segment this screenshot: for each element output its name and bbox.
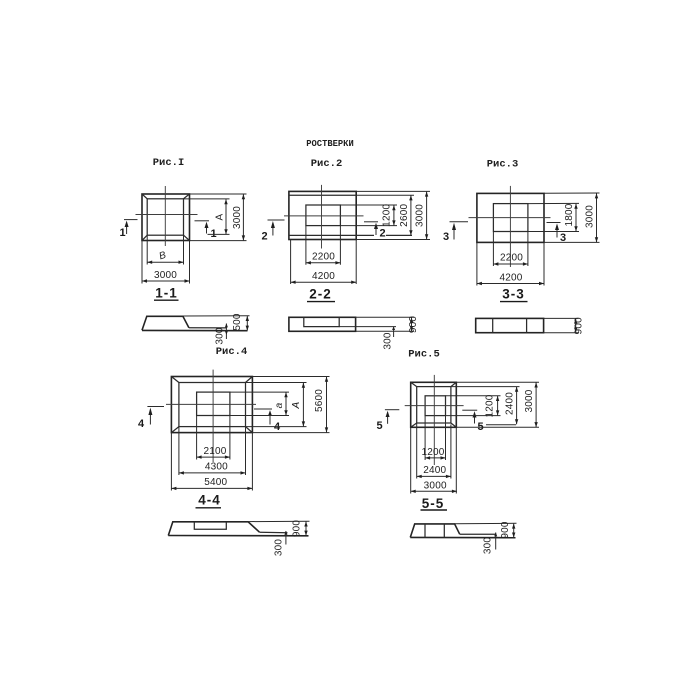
svg-text:4200: 4200 bbox=[499, 272, 522, 283]
svg-text:1: 1 bbox=[120, 227, 126, 239]
svg-text:2: 2 bbox=[262, 231, 268, 243]
svg-text:300: 300 bbox=[383, 332, 394, 350]
svg-text:4-4: 4-4 bbox=[198, 493, 221, 508]
svg-text:900: 900 bbox=[408, 316, 419, 334]
svg-text:2200: 2200 bbox=[312, 252, 335, 263]
svg-text:4: 4 bbox=[138, 418, 145, 430]
svg-text:300: 300 bbox=[274, 539, 285, 557]
svg-text:3000: 3000 bbox=[232, 206, 243, 229]
svg-text:900: 900 bbox=[574, 317, 585, 335]
svg-text:5400: 5400 bbox=[204, 477, 227, 488]
svg-text:1200: 1200 bbox=[421, 447, 444, 458]
svg-text:5-5: 5-5 bbox=[422, 496, 445, 511]
svg-text:А: А bbox=[291, 401, 302, 409]
svg-text:900: 900 bbox=[500, 521, 511, 539]
svg-text:3000: 3000 bbox=[524, 389, 535, 412]
svg-text:1-1: 1-1 bbox=[155, 286, 178, 301]
svg-text:4300: 4300 bbox=[205, 462, 228, 473]
svg-text:1200: 1200 bbox=[381, 204, 392, 227]
svg-text:Рис.4: Рис.4 bbox=[216, 346, 248, 358]
svg-text:А: А bbox=[215, 213, 226, 220]
svg-text:Рис.I: Рис.I bbox=[153, 157, 185, 169]
svg-text:1200: 1200 bbox=[484, 394, 495, 417]
svg-text:3000: 3000 bbox=[414, 204, 425, 227]
svg-text:Рис.3: Рис.3 bbox=[487, 159, 519, 171]
svg-text:2400: 2400 bbox=[504, 392, 515, 415]
svg-text:900: 900 bbox=[292, 520, 303, 538]
svg-text:500: 500 bbox=[232, 313, 243, 331]
svg-text:2-2: 2-2 bbox=[309, 287, 332, 302]
svg-text:3: 3 bbox=[443, 231, 449, 243]
svg-text:Рис.2: Рис.2 bbox=[311, 158, 343, 170]
svg-text:2200: 2200 bbox=[500, 253, 523, 264]
svg-text:2100: 2100 bbox=[203, 446, 226, 457]
svg-text:РОСТВЕРКИ: РОСТВЕРКИ bbox=[306, 139, 354, 149]
svg-text:Рис.5: Рис.5 bbox=[408, 349, 440, 361]
svg-text:5600: 5600 bbox=[314, 389, 325, 412]
svg-text:а: а bbox=[274, 402, 285, 408]
svg-text:5: 5 bbox=[377, 420, 383, 432]
svg-text:2600: 2600 bbox=[399, 204, 410, 227]
svg-text:1800: 1800 bbox=[564, 203, 575, 226]
svg-text:3000: 3000 bbox=[424, 480, 447, 491]
svg-text:3000: 3000 bbox=[154, 270, 177, 281]
svg-text:4200: 4200 bbox=[312, 271, 335, 282]
svg-text:2400: 2400 bbox=[423, 465, 446, 476]
svg-text:300: 300 bbox=[215, 327, 226, 345]
svg-text:3-3: 3-3 bbox=[502, 287, 525, 302]
svg-text:В: В bbox=[158, 250, 168, 263]
svg-text:2: 2 bbox=[380, 228, 386, 240]
svg-text:3000: 3000 bbox=[584, 205, 595, 228]
svg-text:300: 300 bbox=[483, 537, 494, 555]
